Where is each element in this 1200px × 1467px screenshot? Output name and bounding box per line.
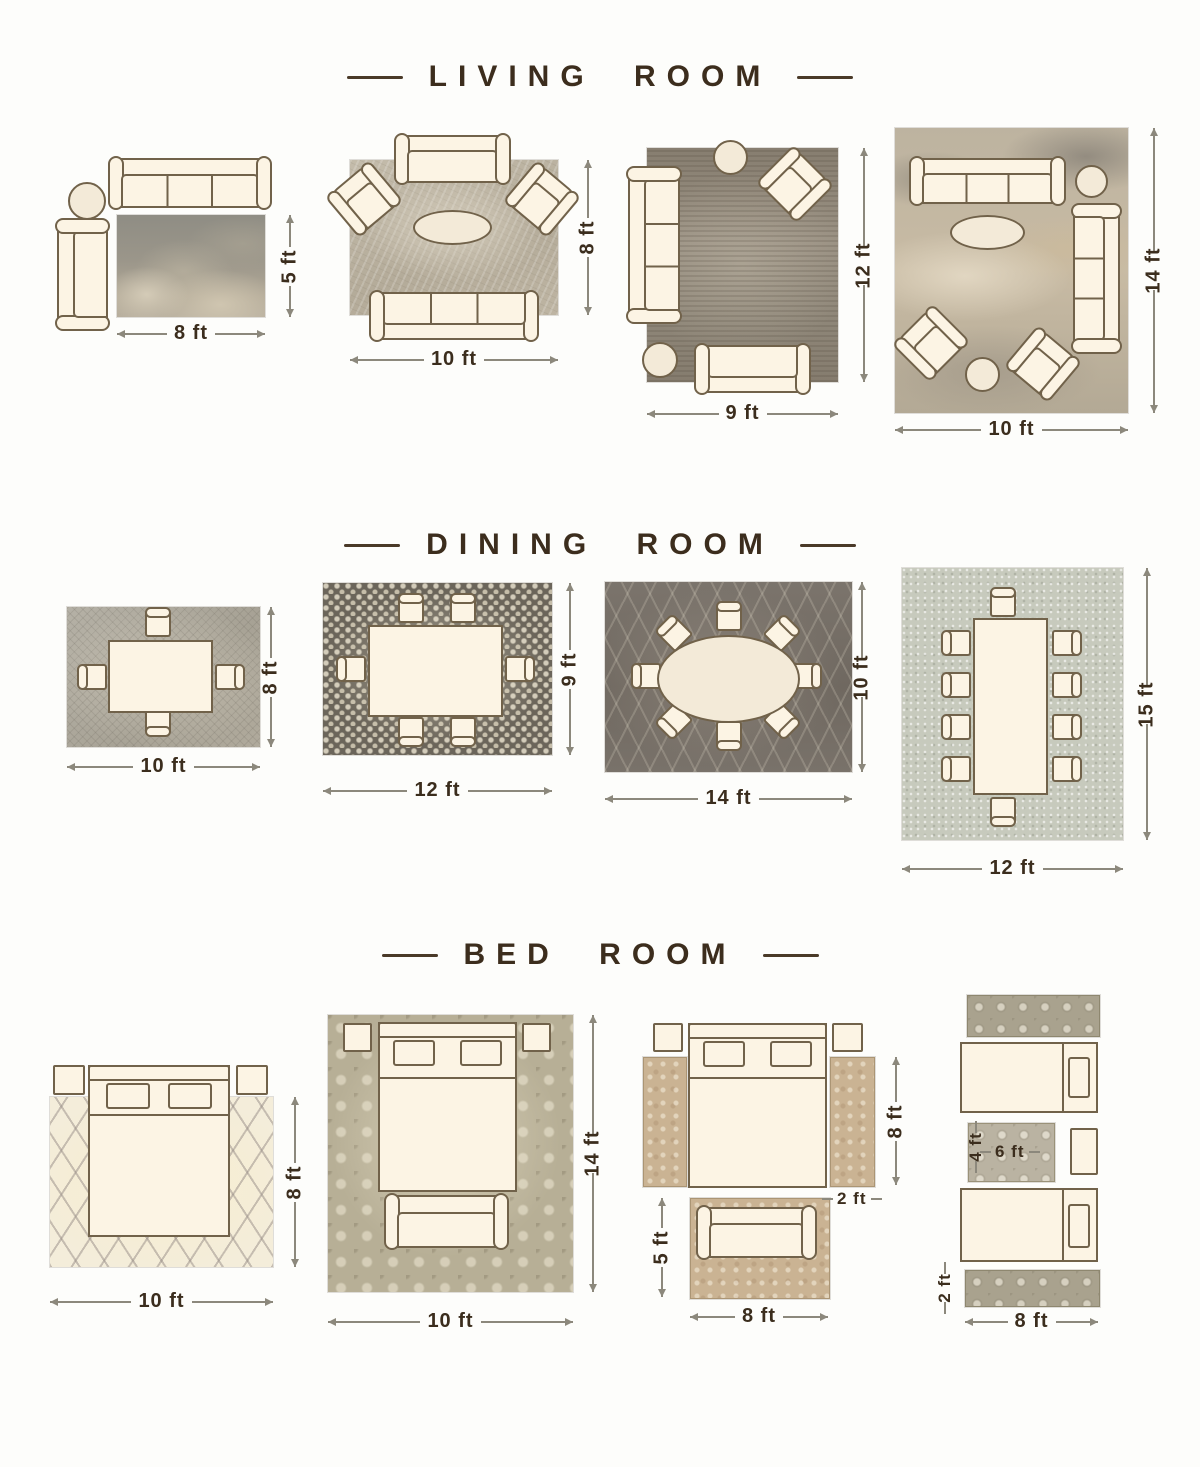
ottoman	[713, 140, 748, 175]
bed-room-layout-10x8: 8 ft 10 ft	[40, 1050, 315, 1305]
twin-bed	[960, 1188, 1098, 1262]
twin-bed	[960, 1042, 1098, 1113]
dimension-runner-width: 2 ft	[822, 1189, 882, 1209]
sofa-seat	[922, 173, 1053, 204]
dining-room-layout-12x15: 15 ft 12 ft	[895, 565, 1185, 890]
sofa-seat	[397, 1212, 496, 1248]
dimension-line	[861, 697, 863, 773]
dining-chair	[945, 672, 971, 698]
dimension-runner-height: 8 ft	[878, 1057, 914, 1185]
dining-chair	[81, 664, 107, 690]
dining-chair	[505, 656, 531, 682]
pillow	[393, 1040, 435, 1066]
sofa	[373, 292, 535, 340]
dimension-line	[289, 215, 291, 247]
dining-chair	[398, 717, 424, 743]
dimension-line	[863, 148, 865, 246]
dimension-height: 9 ft	[552, 583, 588, 755]
dimension-line	[895, 1141, 897, 1186]
dimension-line	[944, 1302, 946, 1314]
runner-rug	[643, 1057, 687, 1187]
dining-chair	[215, 664, 241, 690]
nightstand	[1070, 1128, 1098, 1175]
dimension-center-width: 6 ft	[980, 1142, 1050, 1162]
dining-chair	[398, 597, 424, 623]
dimension-label: 10 ft	[981, 418, 1041, 441]
ottoman	[642, 342, 678, 378]
section-heading: LIVING ROOM	[429, 60, 772, 94]
dimension-line	[895, 1057, 897, 1102]
dimension-line	[294, 1097, 296, 1163]
dimension-line	[569, 583, 571, 650]
dimension-line	[592, 1173, 594, 1292]
dining-chair	[145, 611, 171, 637]
dining-table-oval	[657, 635, 800, 723]
sofa	[112, 158, 268, 208]
section-heading: DINING ROOM	[426, 528, 774, 562]
dimension-label: 10 ft	[133, 755, 193, 778]
title-dash	[382, 954, 438, 957]
dimension-label: 12 ft	[982, 857, 1042, 880]
dimension-runner-width: 2 ft	[932, 1262, 958, 1314]
dimension-line	[215, 333, 265, 335]
dimension-label: 14 ft	[574, 1130, 613, 1176]
dimension-width: 9 ft	[647, 402, 838, 425]
dining-room-layout-10x8: 8 ft 10 ft	[55, 595, 320, 785]
dining-chair	[990, 591, 1016, 617]
dimension-label: 14 ft	[1135, 247, 1174, 293]
dimension-label: 8 ft	[1008, 1310, 1056, 1333]
loveseat	[398, 135, 507, 183]
dimension-line	[1146, 724, 1148, 841]
bench-loveseat	[388, 1195, 505, 1248]
dimension-label: 12 ft	[845, 242, 884, 288]
runner-rug	[967, 995, 1100, 1037]
dimension-width: 10 ft	[895, 418, 1128, 441]
dimension-height: 10 ft	[844, 582, 880, 772]
dimension-bottom-width: 8 ft	[965, 1310, 1098, 1333]
dimension-line	[975, 1121, 977, 1133]
pillow	[770, 1041, 812, 1067]
dimension-label: 2 ft	[833, 1189, 871, 1209]
dimension-line	[902, 868, 982, 870]
dimension-height: 12 ft	[846, 148, 882, 382]
dimension-accent-height: 5 ft	[644, 1198, 680, 1297]
dimension-width: 10 ft	[50, 1290, 273, 1313]
dimension-line	[569, 689, 571, 756]
dimension-height: 5 ft	[272, 215, 308, 317]
dimension-line	[294, 1202, 296, 1268]
dining-table	[368, 625, 503, 717]
sofa-seat	[644, 179, 680, 311]
dimension-line	[1056, 1321, 1099, 1323]
loveseat	[700, 1207, 813, 1258]
dimension-label: 2 ft	[931, 1273, 959, 1303]
dimension-line	[661, 1267, 663, 1297]
dimension-line	[895, 429, 981, 431]
dimension-line	[481, 1321, 573, 1323]
sofa-seat	[407, 150, 498, 183]
living-room-layout-10x14: 14 ft 10 ft	[890, 112, 1190, 452]
dimension-label: 5 ft	[643, 1231, 682, 1265]
dimension-width: 10 ft	[67, 755, 260, 778]
dimension-label: 10 ft	[131, 1290, 191, 1313]
dimension-line	[1029, 1151, 1040, 1153]
sofa-seat	[1073, 216, 1105, 341]
dimension-label: 9 ft	[551, 652, 590, 686]
dimension-line	[605, 798, 698, 800]
nightstand	[236, 1065, 268, 1095]
dimension-line	[1043, 868, 1123, 870]
sofa-seat	[121, 174, 259, 208]
dimension-line	[484, 359, 558, 361]
section-heading: BED ROOM	[464, 938, 737, 972]
dimension-height: 14 ft	[575, 1015, 611, 1292]
dimension-label: 10 ft	[843, 654, 882, 700]
dimension-label: 6 ft	[991, 1142, 1029, 1162]
sofa-seat	[707, 345, 798, 378]
sofa	[913, 158, 1062, 204]
area-rug	[117, 215, 265, 317]
dimension-line	[50, 1301, 131, 1303]
dimension-label: 8 ft	[252, 660, 291, 694]
bed	[378, 1022, 517, 1192]
dimension-line	[323, 790, 407, 792]
dimension-line	[1146, 568, 1148, 685]
dining-room-layout-14x10: 10 ft 14 ft	[600, 575, 890, 820]
dimension-accent-width: 8 ft	[690, 1305, 828, 1328]
bed-room-layout-runners: 8 ft 2 ft 5 ft 8 ft	[640, 1015, 910, 1325]
side-table	[68, 182, 106, 220]
ottoman	[1075, 165, 1108, 198]
dimension-width: 12 ft	[902, 857, 1123, 880]
sofa	[628, 170, 680, 320]
dimension-line	[289, 286, 291, 318]
dimension-line	[1042, 429, 1128, 431]
title-dash	[800, 544, 856, 547]
pillow	[1068, 1204, 1090, 1248]
nightstand	[343, 1023, 372, 1052]
bed	[688, 1023, 827, 1188]
dining-chair	[1052, 756, 1078, 782]
dimension-width: 14 ft	[605, 787, 852, 810]
bed	[88, 1065, 230, 1237]
dimension-label: 10 ft	[420, 1310, 480, 1333]
dimension-height: 15 ft	[1129, 568, 1165, 840]
pillow	[168, 1083, 212, 1109]
dimension-height: 14 ft	[1136, 128, 1172, 413]
dining-chair	[945, 630, 971, 656]
dining-table	[108, 640, 213, 713]
dimension-height: 8 ft	[277, 1097, 313, 1267]
sofa-seat	[382, 292, 526, 325]
title-dash	[344, 544, 400, 547]
sofa-seat	[73, 231, 108, 318]
dining-chair	[990, 797, 1016, 823]
dining-chair	[716, 605, 742, 631]
dining-chair	[1052, 714, 1078, 740]
dimension-label: 5 ft	[271, 249, 310, 283]
dimension-line	[661, 1198, 663, 1228]
dimension-line	[980, 1151, 991, 1153]
dimension-line	[759, 798, 852, 800]
dimension-line	[863, 285, 865, 383]
pillow	[460, 1040, 502, 1066]
dimension-label: 9 ft	[719, 402, 767, 425]
title-dash	[797, 76, 853, 79]
dining-chair	[945, 756, 971, 782]
dining-chair	[945, 714, 971, 740]
dimension-width: 10 ft	[328, 1310, 573, 1333]
dimension-line	[871, 1198, 882, 1200]
dimension-label: 8 ft	[735, 1305, 783, 1328]
dimension-label: 12 ft	[407, 779, 467, 802]
runner-rug	[830, 1057, 875, 1187]
dimension-line	[1153, 290, 1155, 413]
sofa	[1073, 207, 1120, 350]
dimension-line	[328, 1321, 420, 1323]
section-title-living-room: LIVING ROOM	[0, 60, 1200, 94]
nightstand	[653, 1023, 683, 1052]
dimension-line	[270, 697, 272, 748]
nightstand	[522, 1023, 551, 1052]
dimension-line	[1153, 128, 1155, 251]
section-title-bed-room: BED ROOM	[0, 938, 1200, 972]
dimension-width: 8 ft	[117, 322, 265, 345]
dimension-line	[192, 1301, 273, 1303]
dimension-line	[690, 1316, 735, 1318]
dining-room-layout-12x9: 9 ft 12 ft	[320, 575, 600, 810]
dining-chair	[450, 597, 476, 623]
dimension-line	[783, 1316, 828, 1318]
dimension-line	[587, 160, 589, 218]
dimension-line	[965, 1321, 1008, 1323]
pillow	[106, 1083, 150, 1109]
dimension-line	[67, 766, 133, 768]
section-title-dining-room: DINING ROOM	[0, 528, 1200, 562]
dimension-line	[270, 607, 272, 658]
title-dash	[763, 954, 819, 957]
dining-chair	[1052, 672, 1078, 698]
dimension-line	[975, 1161, 977, 1173]
living-room-layout-9x12: 12 ft 9 ft	[620, 130, 895, 435]
dimension-label: 8 ft	[877, 1104, 916, 1138]
loveseat	[698, 345, 807, 393]
dimension-line	[944, 1262, 946, 1274]
coffee-table	[413, 210, 492, 245]
dimension-line	[587, 257, 589, 315]
dimension-line	[194, 766, 260, 768]
runner-rug	[965, 1270, 1100, 1307]
dimension-width: 12 ft	[323, 779, 552, 802]
dining-chair	[450, 717, 476, 743]
sofa-seat	[709, 1223, 804, 1258]
dimension-label: 8 ft	[569, 221, 608, 255]
bed-room-layout-twin: 4 ft 6 ft 2 ft 8 ft	[930, 990, 1180, 1340]
dimension-width: 10 ft	[350, 348, 558, 371]
dimension-line	[468, 790, 552, 792]
dimension-line	[117, 333, 167, 335]
ottoman	[965, 357, 1000, 392]
dimension-line	[592, 1015, 594, 1134]
dimension-label: 10 ft	[424, 348, 484, 371]
dining-table	[973, 618, 1048, 795]
coffee-table	[950, 215, 1025, 250]
dimension-label: 14 ft	[698, 787, 758, 810]
living-room-layout-8x5: 5 ft 8 ft	[50, 140, 318, 355]
dining-chair	[1052, 630, 1078, 656]
dimension-height: 8 ft	[570, 160, 606, 315]
dimension-height: 8 ft	[253, 607, 289, 747]
dimension-label: 15 ft	[1128, 681, 1167, 727]
chaise-sofa	[57, 222, 108, 327]
living-room-layout-10x8: 8 ft 10 ft	[330, 120, 615, 385]
dining-chair	[340, 656, 366, 682]
rug-size-guide: LIVING ROOM 5 ft 8 ft 8 ft 10 ft	[0, 0, 1200, 1467]
pillow	[703, 1041, 745, 1067]
dimension-line	[647, 413, 719, 415]
dimension-label: 8 ft	[276, 1165, 315, 1199]
dimension-line	[767, 413, 839, 415]
dimension-line	[822, 1198, 833, 1200]
dimension-label: 8 ft	[167, 322, 215, 345]
nightstand	[832, 1023, 863, 1052]
dimension-line	[350, 359, 424, 361]
pillow	[1068, 1057, 1090, 1098]
nightstand	[53, 1065, 85, 1095]
dining-chair	[716, 721, 742, 747]
title-dash	[347, 76, 403, 79]
dimension-line	[861, 582, 863, 658]
bed-room-layout-10x14: 14 ft 10 ft	[325, 1010, 620, 1330]
